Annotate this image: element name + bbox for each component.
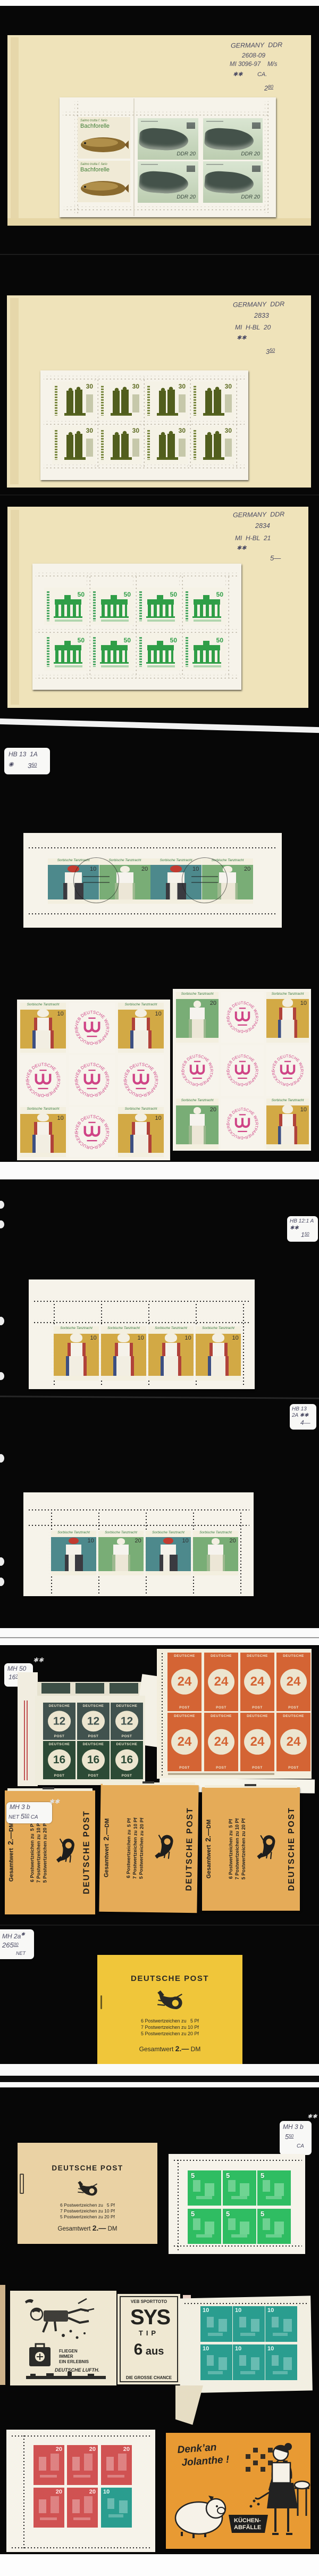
svg-text:•VEB DEUTSCHE WERTPAPIER•DRUCK: •VEB DEUTSCHE WERTPAPIER•DRUCKEREI• [72, 1112, 110, 1150]
svg-text:KÜCHEN-: KÜCHEN- [234, 2517, 261, 2524]
svg-text:Denk’an: Denk’an [177, 2442, 217, 2456]
svg-text:IMMER: IMMER [59, 2354, 73, 2359]
svg-text:ABFÄLLE: ABFÄLLE [234, 2524, 261, 2531]
svg-text:•VEB DEUTSCHE WERTPAPIER•DRUCK: •VEB DEUTSCHE WERTPAPIER•DRUCKEREI• [121, 1060, 159, 1098]
svg-text:EIN ERLEBNIS: EIN ERLEBNIS [59, 2359, 89, 2364]
svg-text:•VEB DEUTSCHE WERTPAPIER•DRUCK: •VEB DEUTSCHE WERTPAPIER•DRUCKEREI• [23, 1060, 61, 1098]
svg-text:•VEB DEUTSCHE WERTPAPIER•DRUCK: •VEB DEUTSCHE WERTPAPIER•DRUCKEREI• [72, 1060, 110, 1098]
svg-text:DEUTSCHE LUFTH.: DEUTSCHE LUFTH. [55, 2367, 99, 2373]
svg-text:•VEB DEUTSCHE WERTPAPIER•DRUCK: •VEB DEUTSCHE WERTPAPIER•DRUCKEREI• [72, 1008, 110, 1046]
svg-text:FLIEGEN: FLIEGEN [59, 2349, 78, 2354]
svg-text:Jolanthe !: Jolanthe ! [181, 2454, 230, 2468]
